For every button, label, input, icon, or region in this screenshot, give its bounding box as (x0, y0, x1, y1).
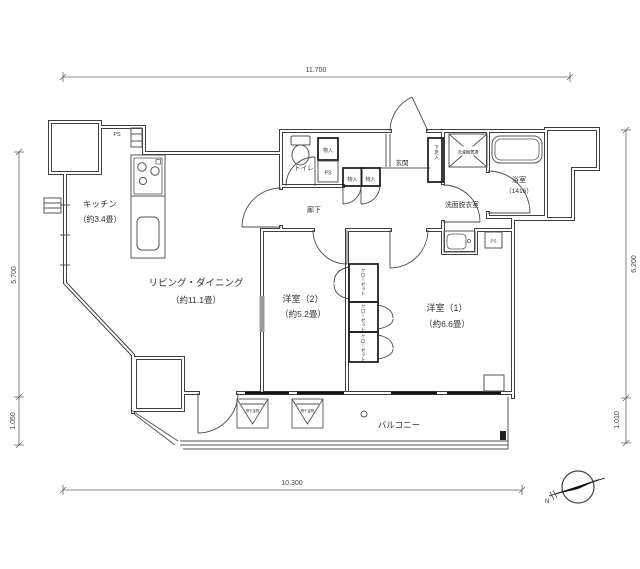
ps-label-bedroom1: PS (490, 239, 496, 244)
closet1-label: クローゼット (360, 268, 366, 296)
closet3-label: クローゼット (360, 334, 366, 362)
bedroom2-size-label: （約5.2畳） (280, 309, 326, 319)
bathroom-label: 浴室 (512, 175, 526, 184)
bedroom1-door (390, 230, 428, 268)
ps-label-hall: PS (325, 171, 332, 177)
walls-inner (50, 122, 598, 412)
meter-box-top (131, 128, 142, 147)
room-labels: キッチン （約3.4畳） リビング・ダイニング （約11.1畳） 洋室（2） （… (78, 158, 532, 430)
entrance-label: 玄関 (396, 158, 409, 167)
dim-left-sub: 1.050 (10, 412, 17, 430)
storage-label-1: 物入 (347, 176, 357, 183)
shoe-cabinet-label: 下足入 (433, 145, 438, 160)
bedroom1-label: 洋室（1） (426, 302, 467, 313)
balcony-railing-diagonal (131, 410, 178, 445)
hall-storage-door-1 (343, 186, 361, 204)
stove-burner (151, 167, 159, 175)
compass: N (545, 471, 605, 505)
service-boxes (44, 128, 504, 391)
hallway-label: 廊下 (307, 205, 321, 214)
dim-right-sub: 1.010 (614, 411, 621, 429)
washroom-label: 洗面脱衣室 (445, 200, 479, 209)
entrance-step-line (386, 134, 390, 167)
laundry-bracket-2 (292, 399, 323, 428)
closet2-doors (378, 305, 393, 329)
bathroom-size-label: （1416） (505, 187, 532, 195)
kitchen-label: キッチン (83, 199, 117, 209)
entrance-door (390, 97, 428, 131)
laundry-bracket-1 (237, 399, 268, 428)
balcony-railing (180, 441, 508, 449)
bedroom2-label: 洋室（2） (282, 293, 323, 304)
dim-right-main-line (621, 127, 631, 401)
living-size-label: （約11.1畳） (171, 295, 221, 305)
washer-label: 洗濯機置場 (458, 149, 480, 156)
dim-right-sub-line (621, 398, 631, 446)
floor-plan: 11.700 10.300 5.700 1.050 6.200 1.010 キッ… (0, 0, 640, 569)
sliding-door-panel (260, 296, 265, 332)
corner-box (484, 375, 504, 391)
dim-left-main: 5.700 (11, 266, 18, 284)
balcony-corner-post (500, 431, 506, 440)
storage-label-3: 物入 (323, 147, 333, 154)
stove-burner (139, 177, 146, 184)
laundry-bracket-label-1: 物干金物 (246, 408, 260, 413)
closet2-label: クローゼット (360, 304, 366, 332)
fixture-labels: 物入 物入 物入 PS PS PS 洗濯機置場 物干金物 物干金物 (113, 132, 496, 413)
kitchen-sink (137, 217, 159, 250)
laundry-bracket-label-2: 物干金物 (301, 408, 315, 413)
living-label: リビング・ダイニング (148, 277, 244, 289)
kitchen-size-label: （約3.4畳） (78, 214, 121, 224)
dimension-lines (14, 72, 631, 495)
dim-right-main: 6.200 (631, 255, 638, 273)
floor-plan-page: 11.700 10.300 5.700 1.050 6.200 1.010 キッ… (0, 0, 640, 569)
balcony-door (198, 393, 238, 433)
kitchen-counter (131, 155, 165, 258)
meter-box-west (44, 198, 61, 213)
balcony-drain (361, 411, 367, 417)
compass-north-label: N (545, 499, 549, 505)
toilet-label: トイレ (294, 165, 314, 172)
bedroom2-door (313, 230, 347, 264)
ps-label-topleft: PS (113, 132, 121, 138)
bathtub (492, 136, 542, 163)
closet3-doors (378, 335, 393, 359)
storage-label-2: 物入 (365, 176, 375, 183)
dim-top: 11.700 (306, 67, 327, 74)
dim-bottom: 10.300 (281, 480, 303, 487)
living-door (242, 188, 281, 227)
ld-partition-slider (260, 296, 265, 332)
vanity (444, 231, 475, 252)
hall-storage-door-2 (361, 186, 380, 204)
stove-burner (138, 163, 146, 171)
balcony-label: バルコニー (378, 420, 420, 430)
bedroom1-size-label: （約6.6畳） (424, 319, 470, 329)
